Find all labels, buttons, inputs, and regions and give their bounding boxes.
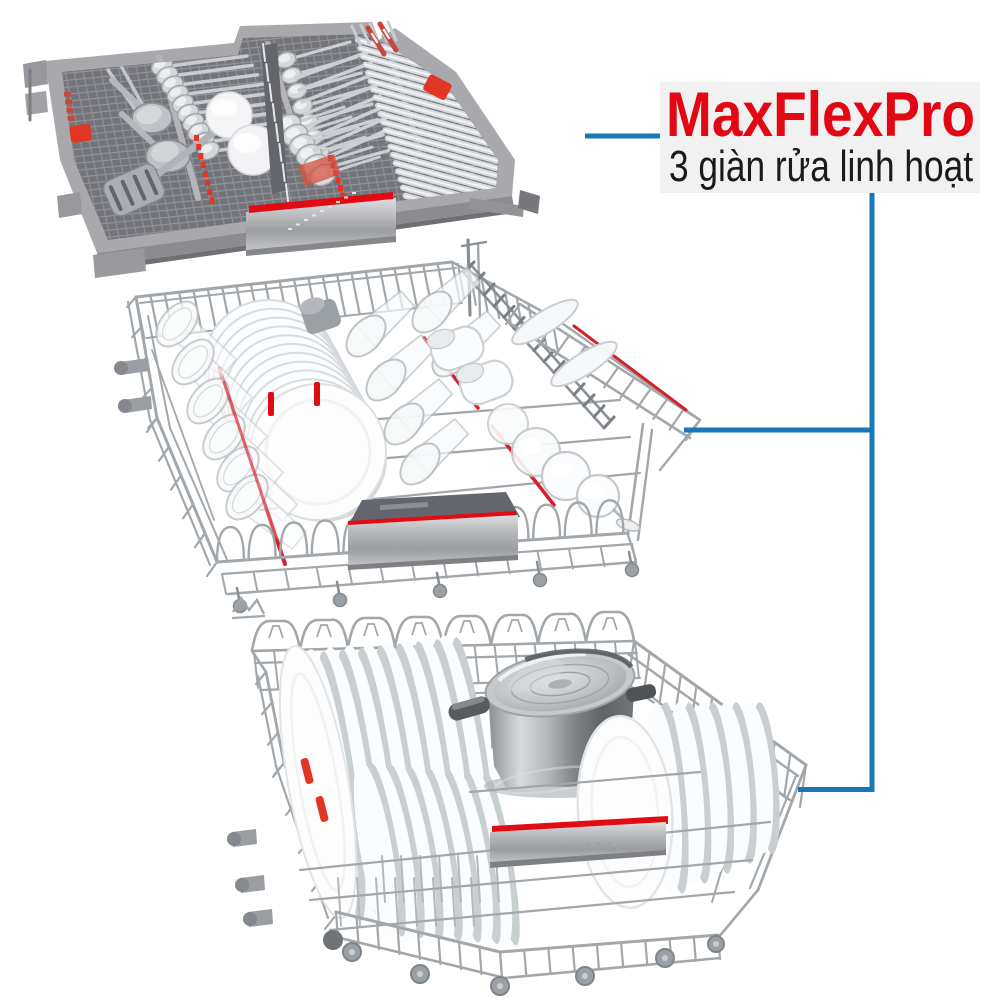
svg-text:3 giàn rửa linh hoạt: 3 giàn rửa linh hoạt: [669, 142, 973, 191]
svg-text:MaxFlexPro: MaxFlexPro: [666, 80, 975, 150]
